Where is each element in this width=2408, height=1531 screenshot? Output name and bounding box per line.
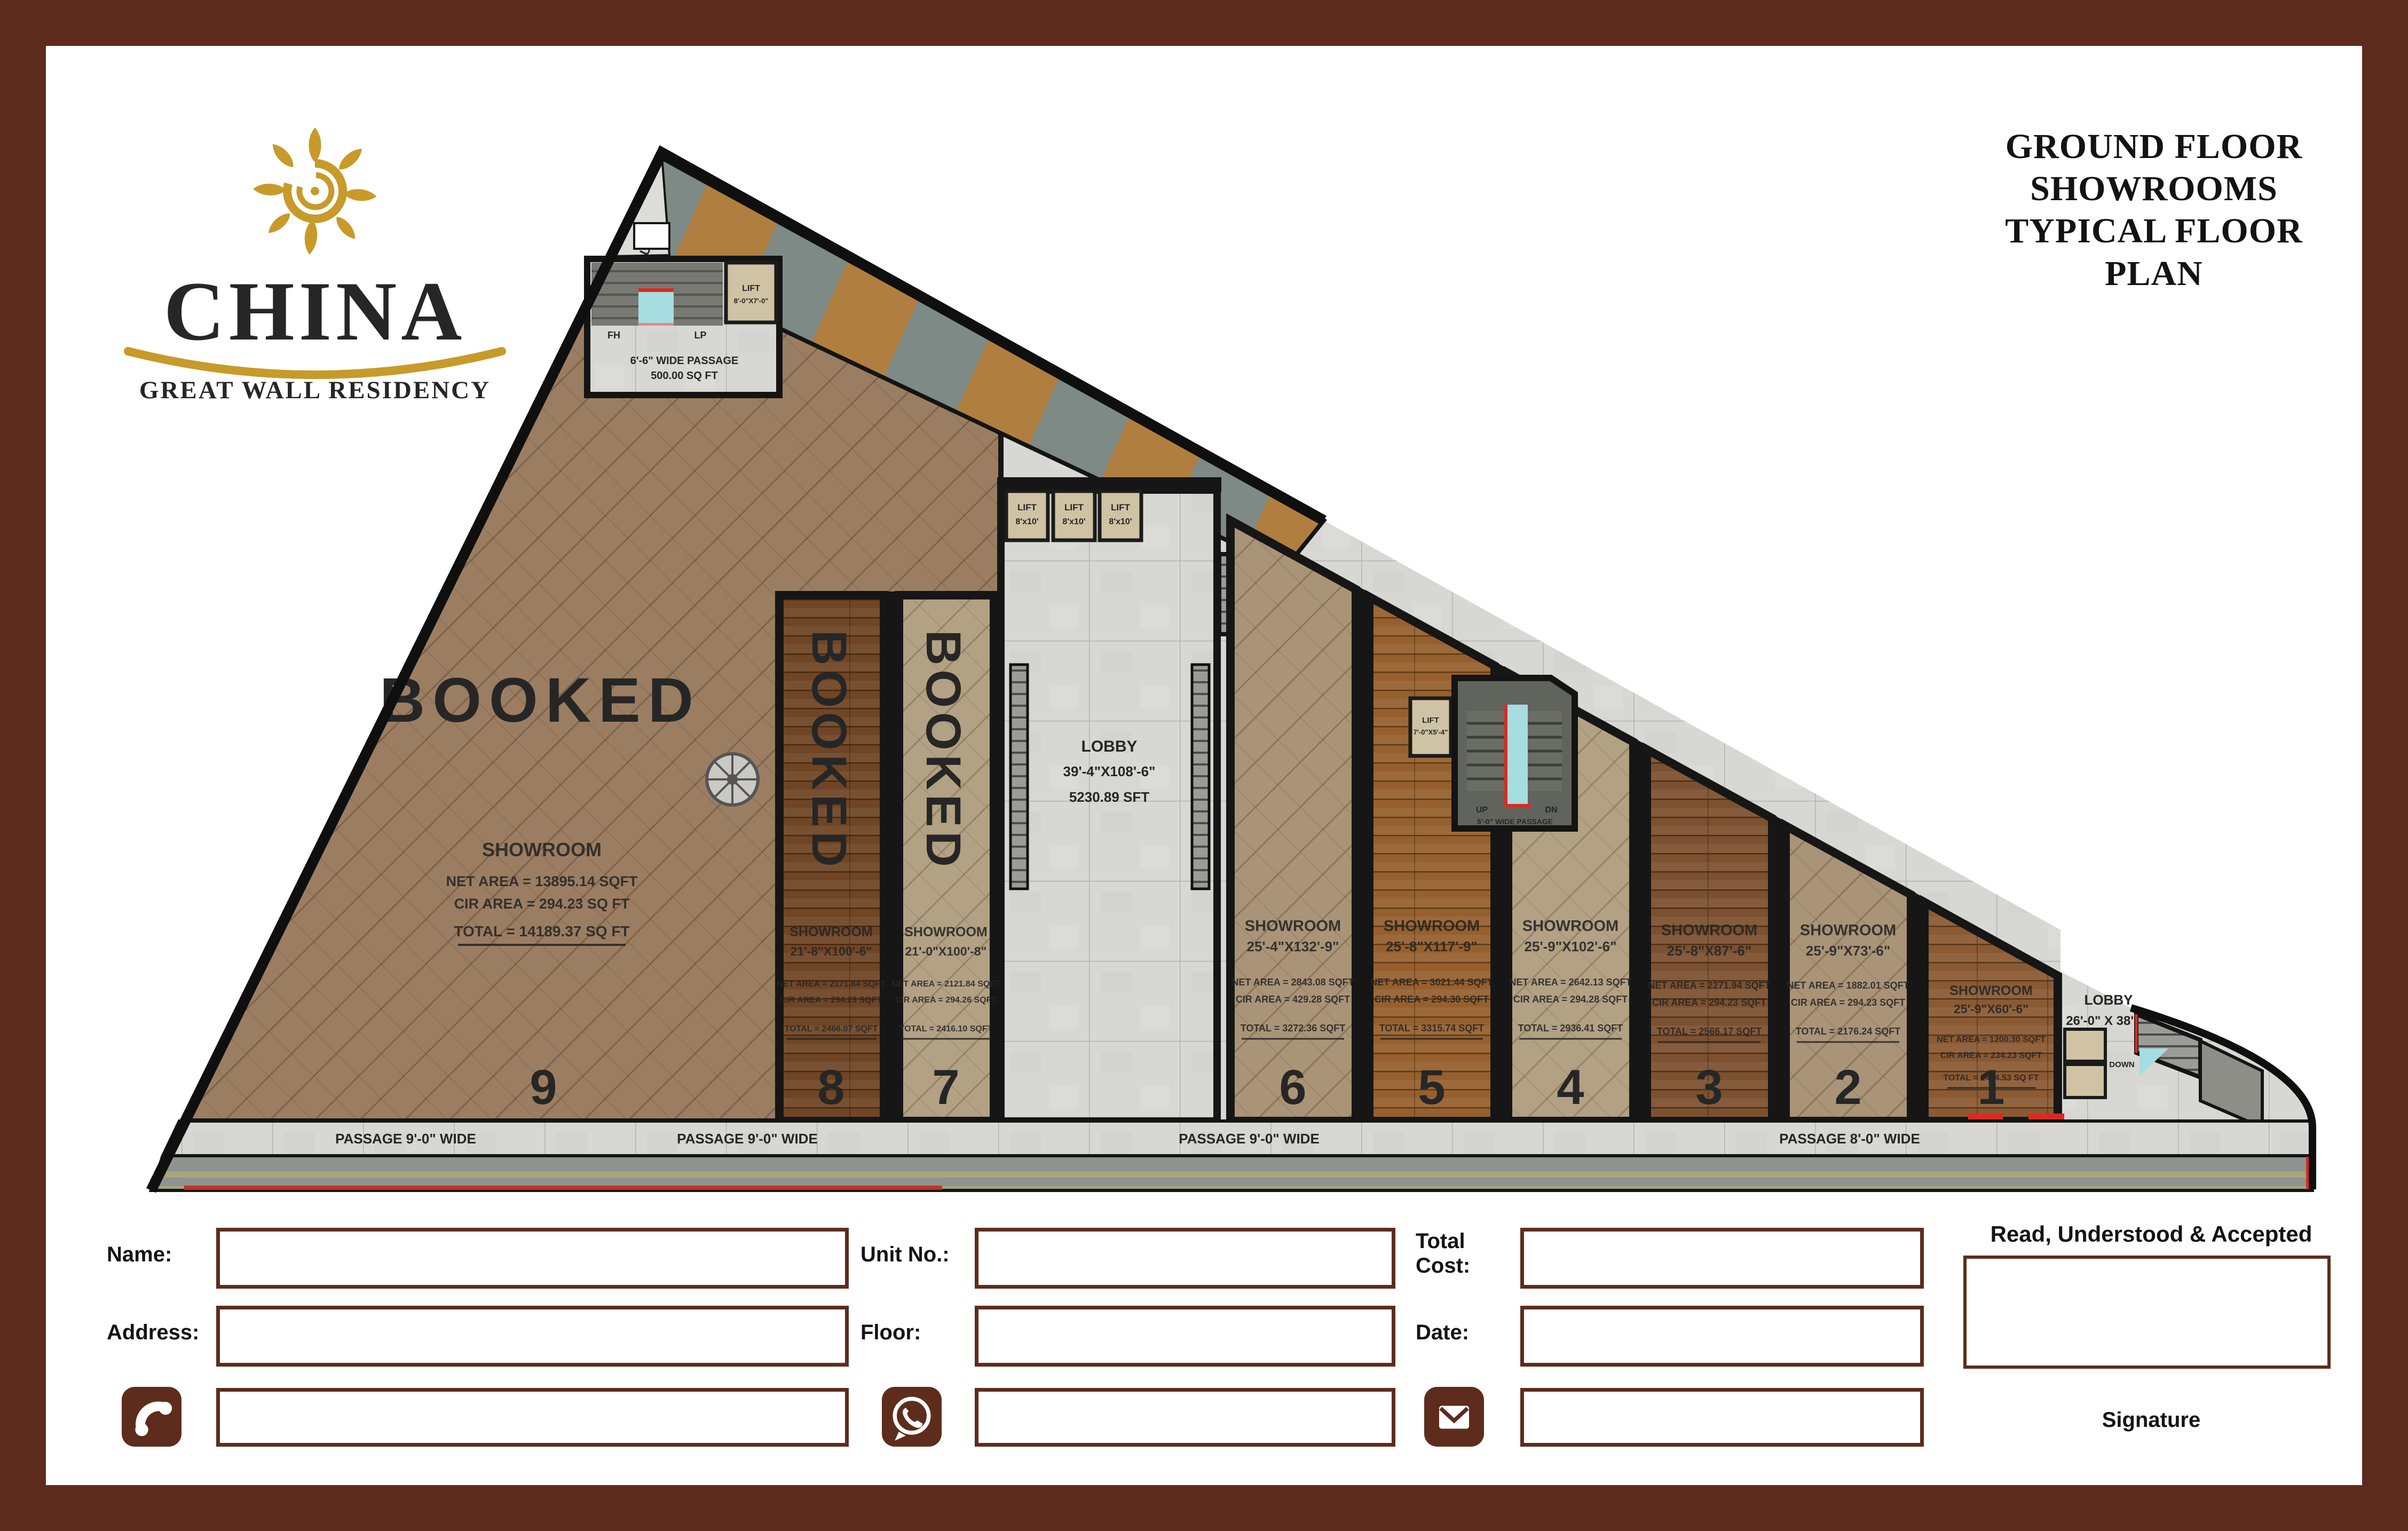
- central-lobby-dims: 39'-4"X108'-6": [1063, 763, 1156, 779]
- sr5-name: SHOWROOM: [1384, 918, 1480, 935]
- whatsapp-field[interactable]: [975, 1388, 1395, 1447]
- lift-1[interactable]: LIFT 8'x10': [1006, 491, 1048, 540]
- sr8-cir: CIR AREA = 294.23 SQFT: [780, 996, 882, 1005]
- sr1-net: NET AREA = 1200.30 SQFT: [1937, 1035, 2046, 1044]
- lift-1-size: 8'x10': [1015, 517, 1038, 526]
- lift-3-label: LIFT: [1111, 502, 1130, 512]
- sr4-cir: CIR AREA = 294.28 SQFT: [1513, 994, 1628, 1005]
- title-line-4: PLAN: [1932, 252, 2375, 295]
- sr5-dims: 25'-8"X117'-9": [1386, 938, 1477, 954]
- sr9-name: SHOWROOM: [482, 839, 602, 861]
- spiral-stair: [707, 754, 758, 805]
- sr5-number: 5: [1418, 1060, 1445, 1115]
- lift-3[interactable]: LIFT 8'x10': [1100, 491, 1141, 540]
- total-cost-label: Total Cost:: [1416, 1229, 1517, 1278]
- entrance-fh-label: FH: [607, 330, 620, 341]
- entrance-passage-area: 500.00 SQ FT: [651, 370, 718, 382]
- floor-label: Floor:: [860, 1321, 921, 1345]
- escalator-left: [1010, 665, 1028, 889]
- sr5-total: TOTAL = 3315.74 SQFT: [1379, 1023, 1485, 1033]
- sr6-total: TOTAL = 3272.36 SQFT: [1241, 1023, 1346, 1033]
- title-line-1: GROUND FLOOR: [1932, 125, 2375, 168]
- sr7-number: 7: [932, 1060, 959, 1115]
- passage-label-4: PASSAGE 8'-0" WIDE: [1779, 1131, 1920, 1147]
- right-lobby-name: LOBBY: [2085, 992, 2133, 1008]
- sr6-net: NET AREA = 2843.08 SQFT: [1231, 977, 1354, 988]
- lift-2-label: LIFT: [1064, 502, 1084, 512]
- sr4-name: SHOWROOM: [1522, 918, 1619, 935]
- signature-label: Signature: [1943, 1408, 2359, 1432]
- sun-icon: [253, 128, 377, 255]
- title-line-3: TYPICAL FLOOR: [1932, 210, 2375, 252]
- sr4-net: NET AREA = 2642.13 SQFT: [1509, 977, 1631, 988]
- sr3-number: 3: [1695, 1060, 1723, 1115]
- mid-lift-label: LIFT: [1422, 716, 1439, 725]
- lift-1-label: LIFT: [1017, 502, 1037, 512]
- brand-name: CHINA: [164, 265, 467, 358]
- sr3-name: SHOWROOM: [1661, 922, 1757, 939]
- sr1-cir: CIR AREA = 234.23 SQFT: [1940, 1051, 2042, 1060]
- sr4-number: 4: [1557, 1060, 1584, 1115]
- sr2-dims: 25'-9"X73'-6": [1806, 943, 1890, 959]
- sr9-number: 9: [530, 1060, 557, 1115]
- passage-label-3: PASSAGE 9'-0" WIDE: [1179, 1131, 1320, 1147]
- sr8-name: SHOWROOM: [789, 925, 873, 940]
- email-field[interactable]: [1520, 1388, 1924, 1447]
- sr3-cir: CIR AREA = 294.23 SQFT: [1652, 997, 1766, 1008]
- sr7-net: NET AREA = 2121.84 SQFT: [891, 980, 1000, 989]
- page-title: GROUND FLOOR SHOWROOMS TYPICAL FLOOR PLA…: [1932, 125, 2375, 295]
- sr7-cir: CIR AREA = 294.26 SQFT: [895, 996, 997, 1005]
- entrance-passage-label: 6'-6" WIDE PASSAGE: [630, 355, 739, 367]
- address-label: Address:: [107, 1321, 199, 1345]
- name-field[interactable]: [216, 1228, 849, 1289]
- sr8-dims: 21'-8"X100'-6": [791, 944, 872, 958]
- phone-icon: [122, 1387, 181, 1447]
- entrance-sign: [634, 223, 669, 249]
- sr7-name: SHOWROOM: [904, 925, 988, 940]
- passage-label-1: PASSAGE 9'-0" WIDE: [335, 1131, 476, 1147]
- sr6-number: 6: [1279, 1060, 1306, 1115]
- accept-label: Read, Understood & Accepted: [1943, 1221, 2359, 1247]
- sr6-dims: 25'-4"X132'-9": [1247, 938, 1339, 954]
- central-lobby-name: LOBBY: [1081, 738, 1138, 755]
- floor-field[interactable]: [975, 1306, 1395, 1367]
- entrance-lift-label: LIFT: [742, 284, 760, 293]
- booked-label-7: BOOKED: [916, 630, 970, 871]
- address-field[interactable]: [216, 1306, 849, 1367]
- unit-no-field[interactable]: [975, 1228, 1395, 1289]
- name-label: Name:: [107, 1243, 172, 1267]
- lift-3-size: 8'x10': [1109, 517, 1132, 526]
- sr1-dims: 25'-9"X60'-6": [1954, 1002, 2028, 1016]
- mid-up-label: UP: [1476, 806, 1488, 815]
- sr5-net: NET AREA = 3021.44 SQFT: [1370, 977, 1493, 988]
- sr9-net: NET AREA = 13895.14 SQFT: [446, 873, 638, 889]
- booked-label-9: BOOKED: [380, 665, 701, 736]
- signature-box[interactable]: [1963, 1256, 2331, 1369]
- sr1-name: SHOWROOM: [1949, 983, 2033, 998]
- sr9-total: TOTAL = 14189.37 SQ FT: [454, 923, 629, 940]
- entrance-block: LIFT 8'-0"X7'-0" FH LP 6'-6" WIDE PASSAG…: [587, 259, 779, 395]
- sr6-name: SHOWROOM: [1245, 918, 1341, 935]
- sr5-cir: CIR AREA = 294.30 SQFT: [1375, 994, 1489, 1005]
- sr3-net: NET AREA = 2271.94 SQFT: [1648, 980, 1770, 991]
- sr2-cir: CIR AREA = 294.23 SQFT: [1791, 997, 1905, 1008]
- entrance-lift-size: 8'-0"X7'-0": [734, 297, 769, 305]
- sr3-total: TOTAL = 2566.17 SQFT: [1657, 1026, 1762, 1037]
- brand-tagline: GREAT WALL RESIDENCY: [139, 376, 491, 404]
- central-lobby-sqft: 5230.89 SFT: [1069, 789, 1149, 805]
- right-lobby-down-label: DOWN: [2109, 1060, 2135, 1069]
- mid-dn-label: DN: [1545, 806, 1557, 815]
- mid-lift-size: 7'-0"X5'-4": [1414, 728, 1448, 736]
- sr4-dims: 25'-9"X102'-6": [1525, 938, 1617, 954]
- email-icon: [1424, 1387, 1484, 1447]
- sr1-number: 1: [1977, 1060, 2004, 1115]
- unit-no-label: Unit No.:: [860, 1243, 950, 1267]
- sr2-name: SHOWROOM: [1800, 922, 1896, 939]
- sr8-total: TOTAL = 2466.07 SQFT: [785, 1024, 878, 1033]
- whatsapp-icon: [882, 1387, 942, 1447]
- sr8-number: 8: [817, 1060, 844, 1115]
- passage-label-2: PASSAGE 9'-0" WIDE: [677, 1131, 818, 1147]
- sr4-total: TOTAL = 2936.41 SQFT: [1518, 1023, 1623, 1033]
- sr2-net: NET AREA = 1882.01 SQFT: [1787, 980, 1909, 991]
- total-cost-field[interactable]: [1520, 1228, 1924, 1289]
- sr7-dims: 21'-0"X100'-8": [905, 944, 987, 958]
- brand-logo: CHINA GREAT WALL RESIDENCY: [107, 101, 523, 411]
- booked-label-8: BOOKED: [802, 630, 856, 871]
- sr2-number: 2: [1834, 1060, 1861, 1115]
- lift-2[interactable]: LIFT 8'x10': [1053, 491, 1095, 540]
- phone-field[interactable]: [216, 1388, 849, 1447]
- date-label: Date:: [1416, 1321, 1469, 1345]
- sr2-total: TOTAL = 2176.24 SQFT: [1796, 1026, 1901, 1037]
- sr9-cir: CIR AREA = 294.23 SQ FT: [454, 896, 630, 912]
- road-strip: [151, 1156, 2312, 1190]
- sr8-net: NET AREA = 2171.84 SQFT: [777, 980, 886, 989]
- escalator-right: [1192, 665, 1209, 889]
- date-field[interactable]: [1520, 1306, 1924, 1367]
- mid-passage-label: 5'-0" WIDE PASSAGE: [1477, 817, 1553, 826]
- title-line-2: SHOWROOMS: [1932, 168, 2375, 210]
- sr7-total: TOTAL = 2416.10 SQFT: [899, 1024, 993, 1033]
- sr6-cir: CIR AREA = 429.28 SQFT: [1236, 994, 1350, 1005]
- lift-2-size: 8'x10': [1062, 517, 1085, 526]
- entrance-lp-label: LP: [694, 330, 706, 341]
- sr3-dims: 25'-8"X87'-6": [1667, 943, 1751, 959]
